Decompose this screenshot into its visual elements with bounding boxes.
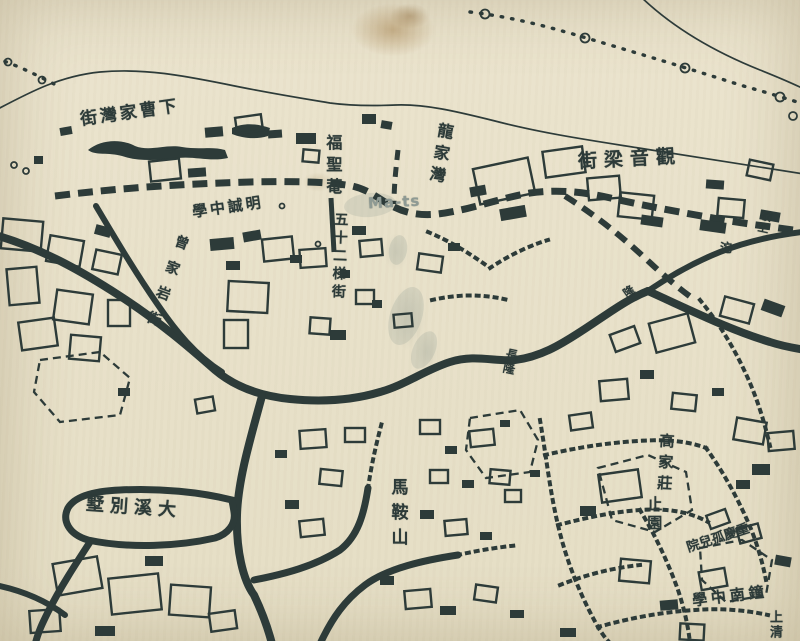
dotted-streets bbox=[368, 232, 770, 641]
shoreline-upper-right bbox=[640, 0, 800, 90]
place-label-tuo: 沱 bbox=[720, 242, 732, 256]
garden-label-zhiyuan: 止園 bbox=[645, 496, 662, 534]
hill-label-maanshan: 馬鞍山 bbox=[387, 478, 407, 553]
temple-label-fushengan: 福聖菴 bbox=[323, 134, 341, 200]
place-label-gaojiazhuang: 高家莊 bbox=[654, 433, 675, 497]
place-label-shangqing: 上清 bbox=[766, 610, 781, 640]
shore-band bbox=[88, 124, 270, 160]
watermark-label-mats: Ma-ts bbox=[368, 193, 421, 213]
map-canvas[interactable]: 街灣家曹下福聖菴龍家灣街梁音觀學中誠明曾家岩街五十二梯街Ma-ts長隆隆高家莊止… bbox=[0, 0, 800, 641]
main-roads bbox=[0, 206, 800, 641]
main-dashed-street bbox=[55, 182, 800, 231]
street-label-wushierti: 五十二梯街 bbox=[329, 212, 348, 303]
